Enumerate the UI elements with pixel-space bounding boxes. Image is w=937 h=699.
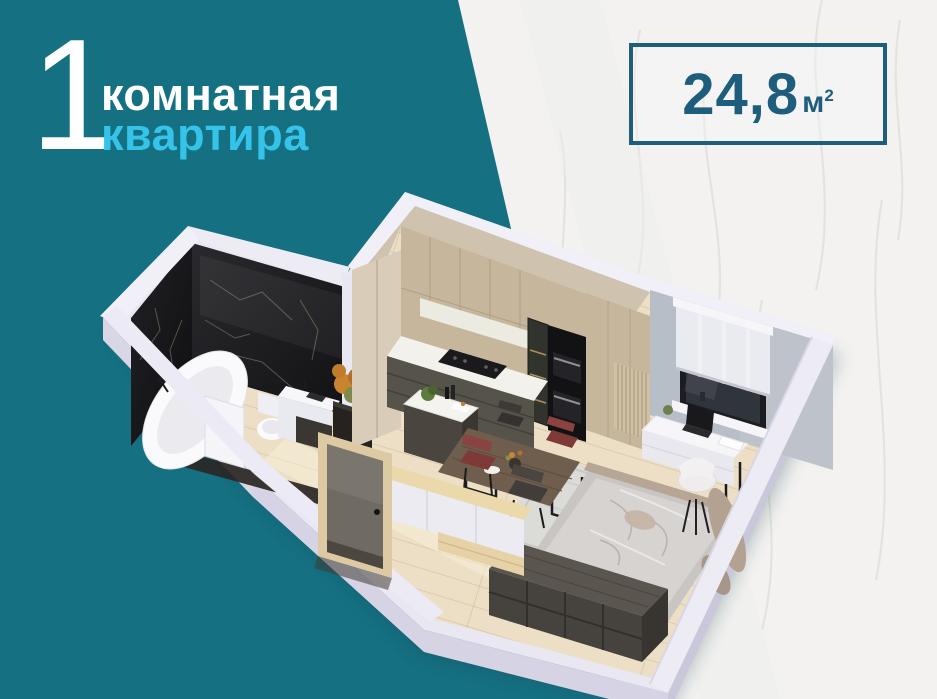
area-badge: 24,8 м2: [629, 43, 887, 145]
area-power: 2: [824, 86, 833, 105]
sill-vase: [700, 392, 705, 401]
entry-door: [314, 432, 392, 590]
door-handle: [374, 509, 380, 515]
title-line-2: квартира: [101, 112, 309, 157]
area-value: 24,8: [682, 61, 799, 128]
island-bottle: [451, 385, 455, 399]
flyer-canvas: 1 комнатная квартира 24,8 м2: [0, 0, 937, 699]
vanity-faucet: [304, 380, 307, 389]
area-unit: м2: [802, 86, 834, 120]
island-bottle: [445, 387, 449, 399]
desk-plant: [663, 405, 673, 415]
